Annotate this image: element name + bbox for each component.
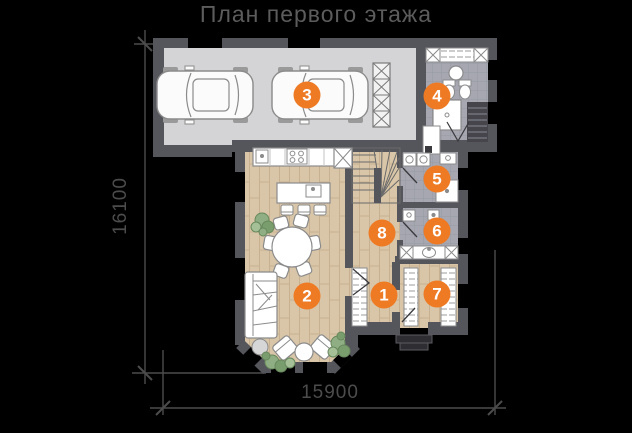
bar-stool-icon [281,205,326,215]
room-marker-1: 1 [371,282,398,309]
entry-steps [396,335,432,350]
dimension-label-width: 15900 [290,382,370,404]
room-marker-3: 3 [294,82,321,109]
washer-icon [403,153,416,166]
stove-icon [287,149,307,164]
room-marker-2: 2 [294,283,321,310]
washbasin-icon [449,66,463,80]
room-marker-8: 8 [369,220,396,247]
wardrobe-icon [426,48,488,62]
room-marker-6: 6 [424,218,451,245]
dryer-icon [417,153,430,166]
storage-rack-icon [373,63,390,127]
basement-stairs-icon [467,102,488,142]
door-panel [423,126,440,154]
hall-floor [352,150,400,265]
room-marker-4: 4 [424,83,451,110]
vanity-icon [400,246,458,259]
floor-plan-page: План первого этажа [0,0,632,433]
room-marker-5: 5 [424,166,451,193]
fridge-icon [334,148,352,168]
car-icon [157,66,253,124]
coffee-table-icon [295,343,313,361]
sofa-icon [245,272,277,338]
sink-icon [256,150,268,163]
bidet-icon [459,80,471,99]
kitchen-counter [253,148,352,168]
wardrobe-icon [352,268,367,326]
dimension-label-height: 16100 [110,176,132,236]
washbasin-icon [403,210,415,221]
room-marker-7: 7 [424,281,451,308]
floor-plan-graphic [0,0,632,433]
kitchen-island [277,183,330,215]
sink-icon [440,153,456,164]
